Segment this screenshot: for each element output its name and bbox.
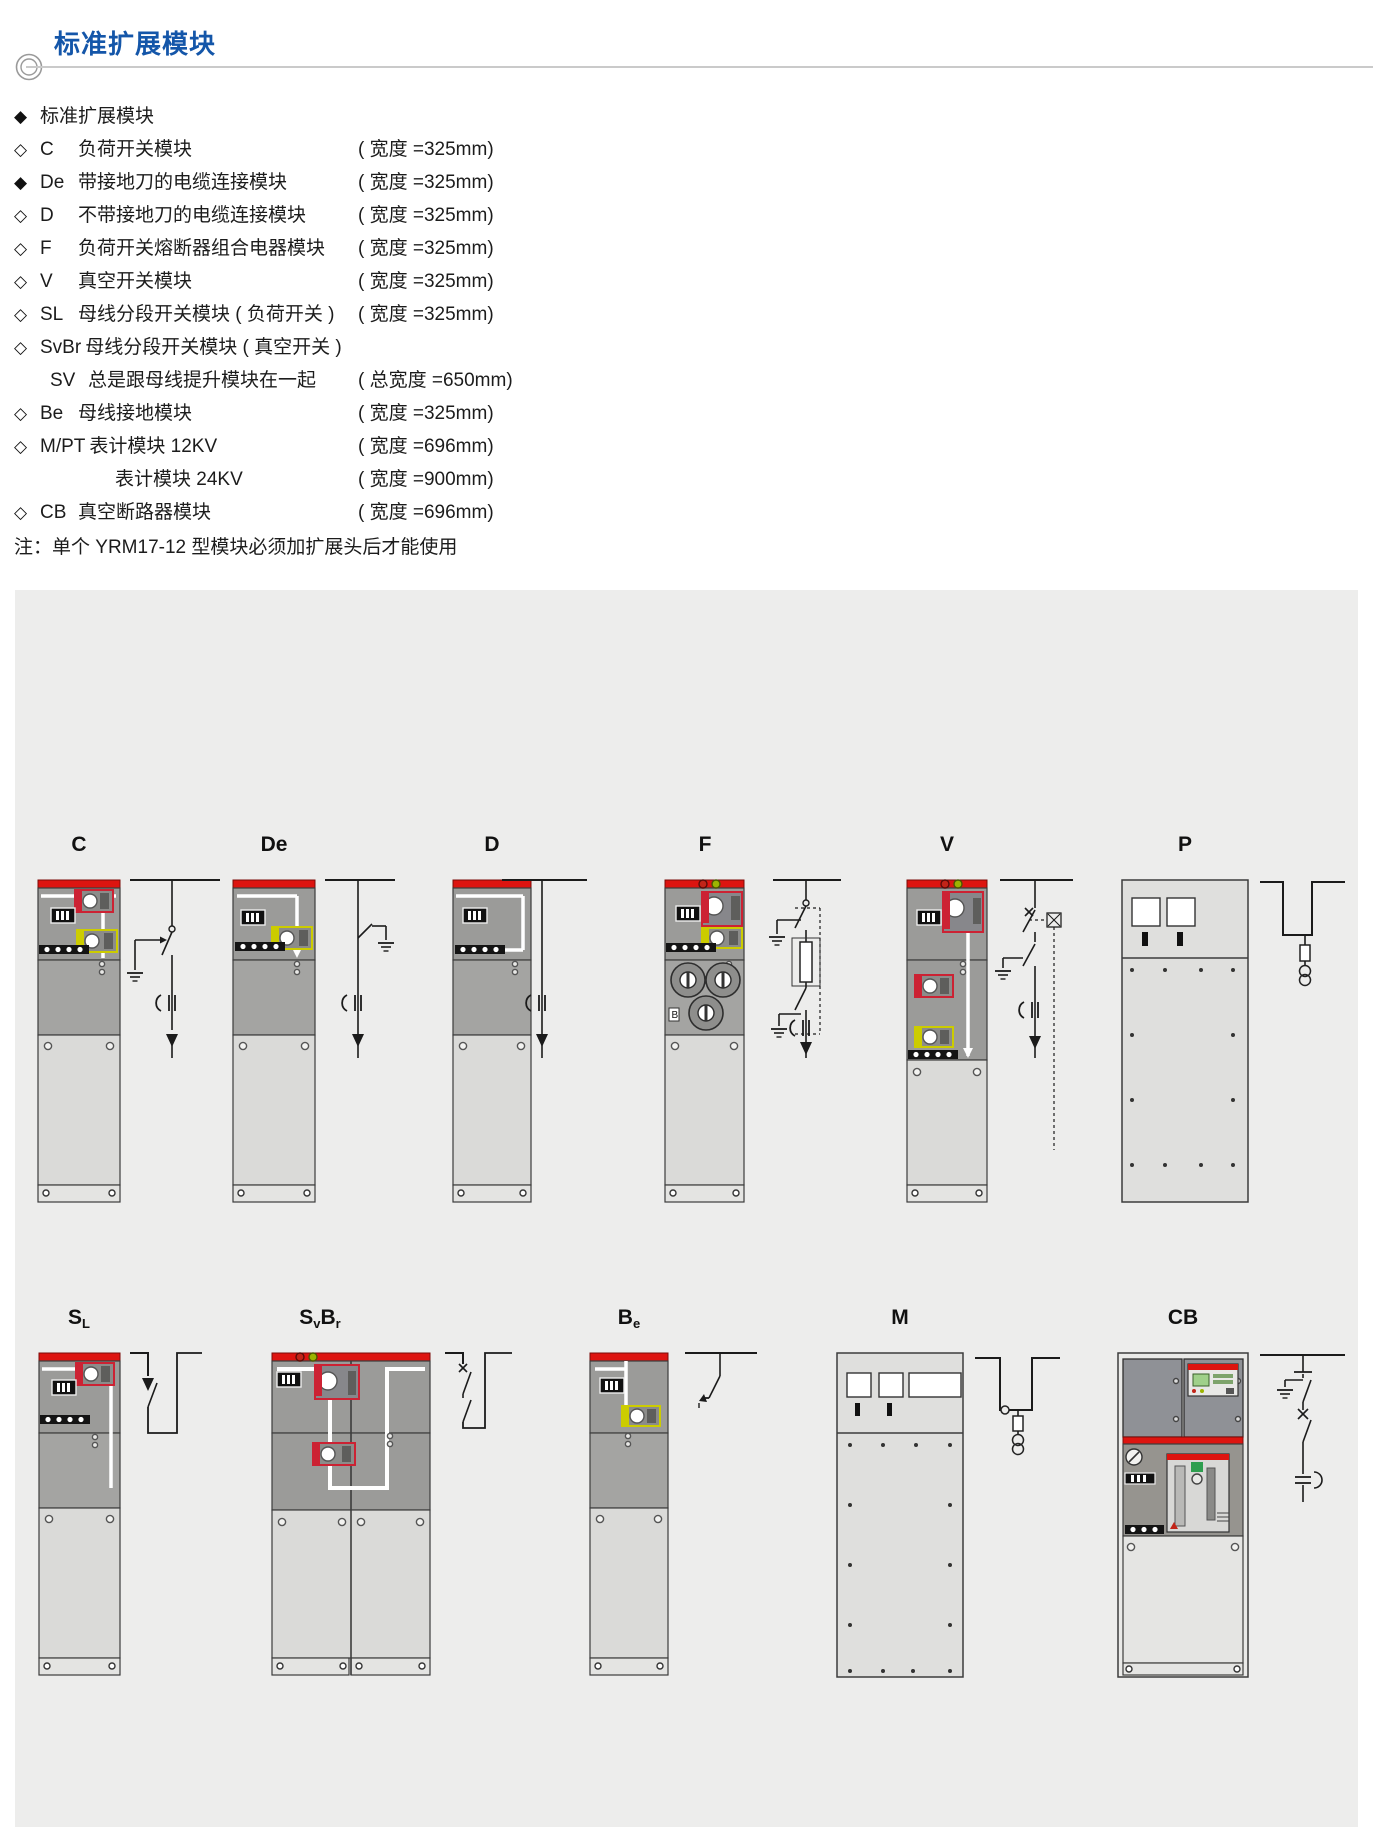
module-description: 真空开关模块 xyxy=(78,271,192,292)
diagram-panel: B CDeDFVPSLSvBrBeMCB xyxy=(15,590,1358,1827)
cabinet-front-icon xyxy=(453,880,587,1202)
module-label-Be: Be xyxy=(559,1306,699,1331)
module-description: 负荷开关模块 xyxy=(78,139,192,160)
cabinet-diagrams-canvas: B xyxy=(15,590,1358,1827)
list-header: ◆标准扩展模块 xyxy=(14,100,714,133)
module-width: ( 宽度 =325mm) xyxy=(358,199,494,232)
module-width: ( 宽度 =325mm) xyxy=(358,166,494,199)
cabinet-front-icon xyxy=(907,880,1073,1202)
cabinet-front-icon xyxy=(233,880,395,1202)
list-item: ◇C负荷开关模块( 宽度 =325mm) xyxy=(14,133,714,166)
module-C xyxy=(38,880,220,1202)
module-code: V xyxy=(40,265,78,298)
cabinet-front-icon xyxy=(272,1353,512,1675)
list-item: ◇SL母线分段开关模块 ( 负荷开关 )( 宽度 =325mm) xyxy=(14,298,714,331)
module-description: 母线分段开关模块 ( 真空开关 ) xyxy=(85,337,342,358)
list-item: 表计模块 24KV( 宽度 =900mm) xyxy=(14,463,714,496)
module-width: ( 宽度 =325mm) xyxy=(358,265,494,298)
list-item: ◇M/PT表计模块 12KV( 宽度 =696mm) xyxy=(14,430,714,463)
module-description: 真空断路器模块 xyxy=(78,502,211,523)
module-CB xyxy=(1118,1353,1345,1677)
cabinet-front-icon xyxy=(38,880,220,1202)
module-width: ( 宽度 =325mm) xyxy=(358,232,494,265)
module-width: ( 宽度 =696mm) xyxy=(358,430,494,463)
module-width: ( 宽度 =696mm) xyxy=(358,496,494,529)
title-divider xyxy=(26,66,1373,68)
module-M xyxy=(837,1353,1060,1677)
diamond-filled-icon: ◆ xyxy=(14,166,40,199)
cabinet-front-icon xyxy=(1122,880,1345,1202)
catalog-page: 标准扩展模块 ◆标准扩展模块◇C负荷开关模块( 宽度 =325mm)◆De带接地… xyxy=(0,0,1373,1848)
module-code: SV xyxy=(50,364,88,397)
list-item: SV总是跟母线提升模块在一起( 总宽度 =650mm) xyxy=(14,364,714,397)
module-width: ( 宽度 =325mm) xyxy=(358,397,494,430)
diamond-hollow-icon: ◇ xyxy=(14,199,40,232)
module-description: 总是跟母线提升模块在一起 xyxy=(88,370,316,391)
module-code: F xyxy=(40,232,78,265)
module-label-M: M xyxy=(830,1306,970,1330)
diamond-hollow-icon: ◇ xyxy=(14,232,40,265)
cabinet-front-icon xyxy=(590,1353,757,1675)
list-item: ◇SvBr母线分段开关模块 ( 真空开关 ) xyxy=(14,331,714,364)
diamond-hollow-icon: ◇ xyxy=(14,133,40,166)
section-ring-icon xyxy=(10,50,48,88)
list-header-text: 标准扩展模块 xyxy=(40,106,154,127)
diamond-filled-icon: ◆ xyxy=(14,100,40,133)
module-P xyxy=(1122,880,1345,1202)
cabinet-front-icon xyxy=(39,1353,202,1675)
module-width: ( 宽度 =325mm) xyxy=(358,133,494,166)
svg-text:B: B xyxy=(672,1010,679,1021)
cabinet-front-icon xyxy=(837,1353,1060,1677)
module-label-F: F xyxy=(635,833,775,857)
module-label-CB: CB xyxy=(1113,1306,1253,1330)
module-label-P: P xyxy=(1115,833,1255,857)
diamond-hollow-icon: ◇ xyxy=(14,430,40,463)
module-code: SvBr xyxy=(40,331,85,364)
module-width: ( 总宽度 =650mm) xyxy=(358,364,513,397)
module-code: SL xyxy=(40,298,78,331)
module-label-V: V xyxy=(877,833,1017,857)
module-description: 母线接地模块 xyxy=(78,403,192,424)
module-label-De: De xyxy=(204,833,344,857)
list-item: ◇V真空开关模块( 宽度 =325mm) xyxy=(14,265,714,298)
diamond-hollow-icon: ◇ xyxy=(14,331,40,364)
module-code: De xyxy=(40,166,78,199)
list-item: ◇F负荷开关熔断器组合电器模块( 宽度 =325mm) xyxy=(14,232,714,265)
diamond-hollow-icon: ◇ xyxy=(14,496,40,529)
cabinet-front-icon: B xyxy=(665,880,841,1202)
module-code: CB xyxy=(40,496,78,529)
module-Be xyxy=(590,1353,757,1675)
cabinet-front-icon xyxy=(1118,1353,1345,1677)
diamond-hollow-icon: ◇ xyxy=(14,265,40,298)
module-code: Be xyxy=(40,397,78,430)
module-width: ( 宽度 =900mm) xyxy=(358,463,494,496)
module-width: ( 宽度 =325mm) xyxy=(358,298,494,331)
module-code: C xyxy=(40,133,78,166)
list-item: ◇Be母线接地模块( 宽度 =325mm) xyxy=(14,397,714,430)
list-item: ◆De带接地刀的电缆连接模块( 宽度 =325mm) xyxy=(14,166,714,199)
module-description: 不带接地刀的电缆连接模块 xyxy=(78,205,306,226)
module-description: 带接地刀的电缆连接模块 xyxy=(78,172,287,193)
module-De xyxy=(233,880,395,1202)
list-item: ◇CB真空断路器模块( 宽度 =696mm) xyxy=(14,496,714,529)
module-label-D: D xyxy=(422,833,562,857)
module-description: 表计模块 12KV xyxy=(89,436,217,457)
module-code: M/PT xyxy=(40,430,89,463)
module-V xyxy=(907,880,1073,1202)
page-title: 标准扩展模块 xyxy=(54,24,216,61)
module-label-SvBr: SvBr xyxy=(250,1306,390,1331)
diamond-hollow-icon: ◇ xyxy=(14,298,40,331)
module-SvBr xyxy=(272,1353,512,1675)
module-SL xyxy=(39,1353,202,1675)
module-description: 负荷开关熔断器组合电器模块 xyxy=(78,238,325,259)
list-note: 注：单个 YRM17-12 型模块必须加扩展头后才能使用 xyxy=(14,531,714,564)
diamond-hollow-icon: ◇ xyxy=(14,397,40,430)
module-F: B xyxy=(665,880,841,1202)
module-label-SL: SL xyxy=(9,1306,149,1331)
module-description: 母线分段开关模块 ( 负荷开关 ) xyxy=(78,304,335,325)
module-label-C: C xyxy=(9,833,149,857)
module-description: 表计模块 24KV xyxy=(115,469,243,490)
module-list: ◆标准扩展模块◇C负荷开关模块( 宽度 =325mm)◆De带接地刀的电缆连接模… xyxy=(14,100,714,564)
module-code: D xyxy=(40,199,78,232)
module-D xyxy=(453,880,587,1202)
list-item: ◇D不带接地刀的电缆连接模块( 宽度 =325mm) xyxy=(14,199,714,232)
